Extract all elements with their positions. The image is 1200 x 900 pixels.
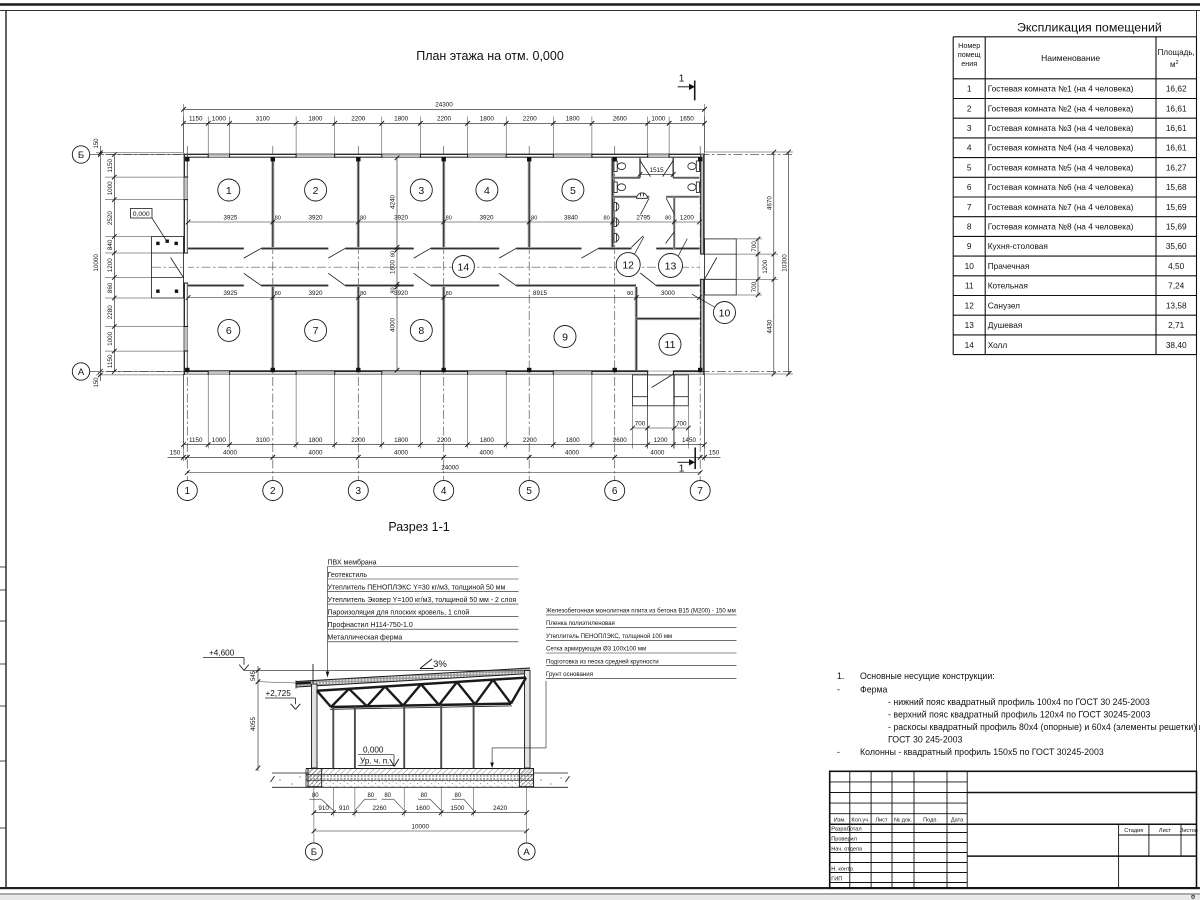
svg-text:3925: 3925 [223,290,238,297]
svg-text:Листов: Листов [1180,828,1198,834]
svg-text:16,61: 16,61 [1166,103,1187,113]
svg-text:Гостевая комната №8 (на 4 чело: Гостевая комната №8 (на 4 человека) [988,222,1134,232]
svg-text:ения: ения [961,59,977,68]
svg-text:1150: 1150 [189,437,203,444]
svg-text:1515: 1515 [650,167,665,174]
svg-text:Н. контр.: Н. контр. [831,867,855,873]
svg-text:3100: 3100 [256,437,271,444]
svg-text:7: 7 [313,325,319,337]
svg-text:4000: 4000 [390,318,397,333]
svg-text:Гостевая комната №4 (на 4 чело: Гостевая комната №4 (на 4 человека) [988,143,1134,153]
svg-text:2: 2 [313,185,319,197]
svg-text:0,000: 0,000 [363,746,384,755]
svg-text:- верхний пояс квадратный проф: - верхний пояс квадратный профиль 120х4 … [888,709,1150,719]
svg-text:16,61: 16,61 [1166,143,1187,153]
svg-text:2200: 2200 [437,437,452,444]
svg-text:9: 9 [967,241,972,251]
svg-text:3%: 3% [433,659,447,670]
svg-text:2: 2 [270,486,276,497]
svg-text:8: 8 [418,325,424,337]
svg-text:80: 80 [312,793,319,799]
svg-text:16,62: 16,62 [1166,84,1187,94]
svg-text:80: 80 [275,291,281,297]
svg-text:1600: 1600 [416,805,431,812]
svg-text:Экспликация помещений: Экспликация помещений [1017,21,1162,35]
svg-text:80: 80 [603,215,609,221]
svg-text:700: 700 [751,241,758,252]
svg-text:Номер: Номер [958,41,980,50]
svg-text:1800: 1800 [394,116,409,123]
svg-text:2420: 2420 [493,805,508,812]
svg-text:А: А [78,367,85,378]
svg-text:3925: 3925 [223,214,238,221]
svg-text:1000: 1000 [212,116,227,123]
svg-text:80: 80 [446,291,452,297]
svg-text:80: 80 [384,793,391,799]
svg-text:3: 3 [356,486,362,497]
svg-text:А: А [523,847,530,858]
svg-text:Профнастил Н114-750-1.0: Профнастил Н114-750-1.0 [328,622,413,629]
svg-text:80: 80 [454,793,461,799]
svg-text:860: 860 [107,282,114,293]
svg-text:80: 80 [275,215,281,221]
svg-text:1000: 1000 [107,331,114,346]
svg-text:840: 840 [107,239,114,250]
svg-text:1650: 1650 [680,116,695,123]
svg-text:4055: 4055 [250,717,257,732]
svg-text:Ф: Ф [1191,895,1196,900]
svg-text:35,60: 35,60 [1166,241,1187,251]
svg-text:Кол.уч.: Кол.уч. [851,817,870,823]
svg-text:5: 5 [967,162,972,172]
svg-text:15,69: 15,69 [1166,222,1187,232]
svg-text:80: 80 [391,251,397,257]
svg-text:Лист: Лист [1159,828,1172,834]
svg-text:Холл: Холл [988,340,1008,350]
svg-text:Душевая: Душевая [988,320,1023,330]
svg-text:2: 2 [967,103,972,113]
svg-text:1600: 1600 [390,260,397,275]
svg-text:4670: 4670 [767,196,774,211]
svg-text:План этажа на отм. 0,000: План этажа на отм. 0,000 [416,49,564,63]
svg-text:14: 14 [965,340,975,350]
svg-text:Ферма: Ферма [860,684,888,694]
svg-text:1: 1 [185,486,191,497]
svg-text:80: 80 [421,793,428,799]
svg-text:2520: 2520 [107,211,114,226]
svg-text:2600: 2600 [613,437,628,444]
svg-text:Нач. отдела: Нач. отдела [831,847,863,853]
svg-text:11: 11 [965,281,974,291]
svg-text:2260: 2260 [372,805,387,812]
svg-text:1200: 1200 [107,258,114,273]
svg-text:3: 3 [967,123,972,133]
svg-text:24300: 24300 [435,102,453,109]
svg-text:2,71: 2,71 [1168,320,1185,330]
svg-text:1800: 1800 [566,437,581,444]
svg-text:Колонны - квадратный профиль 1: Колонны - квадратный профиль 150х5 по ГО… [860,747,1104,757]
svg-text:5: 5 [526,486,532,497]
svg-text:24000: 24000 [441,465,459,472]
svg-text:3100: 3100 [256,116,271,123]
svg-text:2280: 2280 [107,305,114,320]
svg-text:150: 150 [94,377,100,388]
svg-text:8: 8 [967,222,972,232]
svg-text:Лист: Лист [875,817,888,823]
svg-text:Ур. ч. п.: Ур. ч. п. [360,757,389,766]
svg-text:80: 80 [367,793,374,799]
svg-text:700: 700 [635,420,646,427]
svg-text:1500: 1500 [450,805,465,812]
svg-text:4: 4 [967,143,972,153]
svg-text:150: 150 [170,450,181,457]
svg-text:4430: 4430 [767,319,774,334]
svg-text:14: 14 [458,261,470,273]
svg-text:80: 80 [665,215,671,221]
svg-text:80: 80 [391,287,397,293]
svg-text:3840: 3840 [564,214,579,221]
svg-text:13,58: 13,58 [1166,300,1187,310]
svg-text:ГИП: ГИП [831,877,842,883]
svg-text:1200: 1200 [762,259,769,274]
svg-text:Проверил: Проверил [831,837,857,843]
svg-text:6: 6 [226,325,232,337]
svg-text:Гостевая комната №2 (на 4 чело: Гостевая комната №2 (на 4 человека) [988,103,1134,113]
svg-text:3920: 3920 [394,214,409,221]
svg-text:4000: 4000 [650,450,665,457]
svg-text:Основные несущие конструкции:: Основные несущие конструкции: [860,671,995,681]
svg-text:Геотекстиль: Геотекстиль [328,572,368,579]
svg-text:10: 10 [965,261,975,271]
svg-text:16,61: 16,61 [1166,123,1187,133]
svg-text:Гостевая комната №1 (на 4 чело: Гостевая комната №1 (на 4 человека) [988,84,1134,94]
svg-text:700: 700 [751,281,758,292]
svg-text:Стадия: Стадия [1124,828,1143,834]
svg-text:6: 6 [967,182,972,192]
svg-text:1: 1 [967,84,972,94]
svg-text:3920: 3920 [308,290,323,297]
svg-text:ГОСТ 30 245-2003: ГОСТ 30 245-2003 [888,734,963,744]
svg-text:80: 80 [446,215,452,221]
svg-text:-: - [837,747,840,757]
svg-text:3000: 3000 [661,290,676,297]
svg-text:0,000: 0,000 [133,211,150,218]
svg-text:10000: 10000 [93,254,100,272]
svg-text:Грунт основания: Грунт основания [546,671,593,678]
svg-text:12: 12 [965,300,975,310]
svg-text:+2,725: +2,725 [266,689,292,698]
svg-text:10300: 10300 [781,254,788,272]
svg-text:80: 80 [360,215,366,221]
svg-text:Б: Б [311,847,317,858]
svg-text:помещ: помещ [958,50,981,59]
svg-text:545: 545 [251,670,257,681]
svg-text:Гостевая комната №6 (на 4 чело: Гостевая комната №6 (на 4 человека) [988,182,1134,192]
svg-text:1800: 1800 [480,437,495,444]
svg-text:3: 3 [418,185,424,197]
svg-text:1800: 1800 [308,437,323,444]
svg-text:700: 700 [676,420,687,427]
svg-text:Гостевая комната №3 (на 4 чело: Гостевая комната №3 (на 4 человека) [988,123,1134,133]
svg-text:Утеплитель ПЕНОПЛЭКС Y=30 кг/м: Утеплитель ПЕНОПЛЭКС Y=30 кг/м3, толщино… [328,583,506,591]
svg-text:1200: 1200 [653,437,668,444]
svg-text:1800: 1800 [308,116,323,123]
svg-text:2200: 2200 [437,116,452,123]
svg-text:Санузел: Санузел [988,300,1020,310]
svg-text:№ док.: № док. [894,817,912,823]
svg-text:1200: 1200 [680,214,695,221]
svg-text:Пленка полиэтиленовая: Пленка полиэтиленовая [546,620,615,627]
svg-text:4,50: 4,50 [1168,261,1185,271]
svg-text:1: 1 [226,185,232,197]
svg-text:1800: 1800 [480,116,495,123]
svg-text:2200: 2200 [351,437,366,444]
svg-text:1: 1 [679,74,685,85]
svg-text:2200: 2200 [351,116,366,123]
svg-text:2200: 2200 [523,437,538,444]
svg-text:4000: 4000 [308,450,323,457]
svg-text:4000: 4000 [223,450,238,457]
svg-text:1800: 1800 [394,437,409,444]
svg-text:6: 6 [612,486,618,497]
svg-text:2600: 2600 [613,116,628,123]
svg-text:4240: 4240 [390,195,397,210]
svg-text:Пароизоляция для плоских крове: Пароизоляция для плоских кровель, 1 слой [328,609,470,617]
svg-text:7,24: 7,24 [1168,281,1185,291]
svg-text:Дата: Дата [951,817,964,823]
svg-text:Гостевая комната №5 (на 4 чело: Гостевая комната №5 (на 4 человека) [988,162,1134,172]
svg-text:4000: 4000 [565,450,580,457]
svg-text:7: 7 [697,486,703,497]
svg-text:1: 1 [679,464,685,475]
svg-text:+4,600: +4,600 [209,648,235,657]
svg-text:10000: 10000 [411,823,429,830]
svg-text:Утеплитель ПЕНОПЛЭКС, толщиной: Утеплитель ПЕНОПЛЭКС, толщиной 100 мм [546,633,672,640]
svg-text:2200: 2200 [523,116,538,123]
svg-text:Котельная: Котельная [988,281,1028,291]
svg-text:4000: 4000 [394,450,409,457]
svg-text:5: 5 [570,185,576,197]
svg-text:3920: 3920 [308,214,323,221]
svg-text:1000: 1000 [651,116,666,123]
svg-text:-: - [837,684,840,694]
svg-text:11: 11 [665,339,676,351]
svg-text:3920: 3920 [479,214,494,221]
svg-text:1800: 1800 [566,116,581,123]
svg-text:910: 910 [318,805,329,812]
svg-text:13: 13 [665,260,677,272]
svg-text:12: 12 [622,259,634,271]
svg-text:9: 9 [562,331,568,343]
svg-text:1000: 1000 [107,181,114,196]
svg-text:Сетка армирующая Ø3 100х100 мм: Сетка армирующая Ø3 100х100 мм [546,646,646,653]
svg-text:7: 7 [967,202,972,212]
svg-text:4: 4 [441,486,447,497]
svg-text:1150: 1150 [189,116,203,123]
svg-text:4000: 4000 [479,450,494,457]
svg-text:Разработал: Разработал [831,827,861,833]
svg-text:Подготовка из песка средней кр: Подготовка из песка средней крупности [546,658,659,665]
svg-text:Наименование: Наименование [1041,53,1100,63]
svg-text:150: 150 [709,450,720,457]
svg-text:150: 150 [94,138,100,149]
svg-text:1150: 1150 [107,354,114,368]
svg-text:910: 910 [339,805,350,812]
svg-text:1000: 1000 [212,437,227,444]
svg-text:10: 10 [719,307,731,319]
svg-text:38,40: 38,40 [1166,340,1187,350]
svg-text:15,68: 15,68 [1166,182,1187,192]
svg-text:- раскосы квадратный профиль 8: - раскосы квадратный профиль 80х4 (опорн… [888,722,1200,732]
svg-text:1450: 1450 [682,437,697,444]
svg-text:2795: 2795 [636,214,651,221]
svg-text:Кухня-столовая: Кухня-столовая [988,241,1048,251]
svg-text:Разрез 1-1: Разрез 1-1 [388,520,449,534]
svg-text:Прачечная: Прачечная [988,261,1030,271]
svg-text:8915: 8915 [533,290,548,297]
svg-text:Металлическая ферма: Металлическая ферма [328,635,403,642]
svg-text:1.: 1. [837,671,844,681]
svg-text:1150: 1150 [107,159,114,173]
svg-text:16,27: 16,27 [1166,162,1187,172]
svg-text:- нижний пояс квадратный профи: - нижний пояс квадратный профиль 100х4 п… [888,697,1150,707]
svg-text:Б: Б [78,150,84,161]
svg-text:Изм.: Изм. [834,817,846,823]
svg-text:4: 4 [484,185,490,197]
svg-text:13: 13 [965,320,975,330]
svg-text:80: 80 [360,291,366,297]
svg-text:Гостевая комната №7 (на 4 чело: Гостевая комната №7 (на 4 человека) [988,202,1134,212]
svg-text:Площадь,: Площадь, [1158,48,1195,57]
svg-text:Подп.: Подп. [923,817,938,823]
svg-text:80: 80 [531,215,537,221]
svg-text:ПВХ мембрана: ПВХ мембрана [328,558,377,566]
svg-text:80: 80 [627,291,633,297]
svg-text:15,69: 15,69 [1166,202,1187,212]
svg-text:Утеплитель Эковер Y=100 кг/м3,: Утеплитель Эковер Y=100 кг/м3, толщиной … [328,596,517,604]
svg-text:Железобетонная монолитная плит: Железобетонная монолитная плита из бетон… [546,608,736,615]
